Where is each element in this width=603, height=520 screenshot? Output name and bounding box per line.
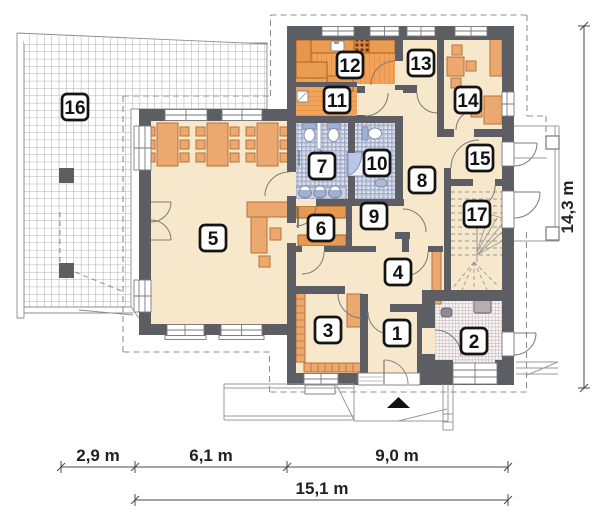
svg-text:14: 14 [457,91,479,112]
svg-text:12: 12 [339,56,360,77]
svg-text:6,1 m: 6,1 m [189,446,232,465]
svg-text:15,1 m: 15,1 m [296,479,349,498]
svg-text:7: 7 [317,157,328,178]
svg-text:1: 1 [392,324,403,345]
svg-text:8: 8 [417,171,428,192]
svg-text:16: 16 [64,98,85,119]
svg-text:2,9 m: 2,9 m [76,446,119,465]
svg-text:15: 15 [469,149,491,170]
svg-text:5: 5 [208,229,219,250]
svg-text:3: 3 [323,321,334,342]
svg-text:4: 4 [393,263,404,284]
svg-text:14,3 m: 14,3 m [558,181,577,234]
svg-text:2: 2 [469,332,480,353]
svg-text:6: 6 [316,219,327,240]
svg-text:17: 17 [466,205,487,226]
svg-text:9,0 m: 9,0 m [375,446,418,465]
svg-text:11: 11 [327,91,348,112]
svg-text:10: 10 [366,154,387,175]
svg-text:9: 9 [369,207,380,228]
svg-text:13: 13 [410,54,431,75]
